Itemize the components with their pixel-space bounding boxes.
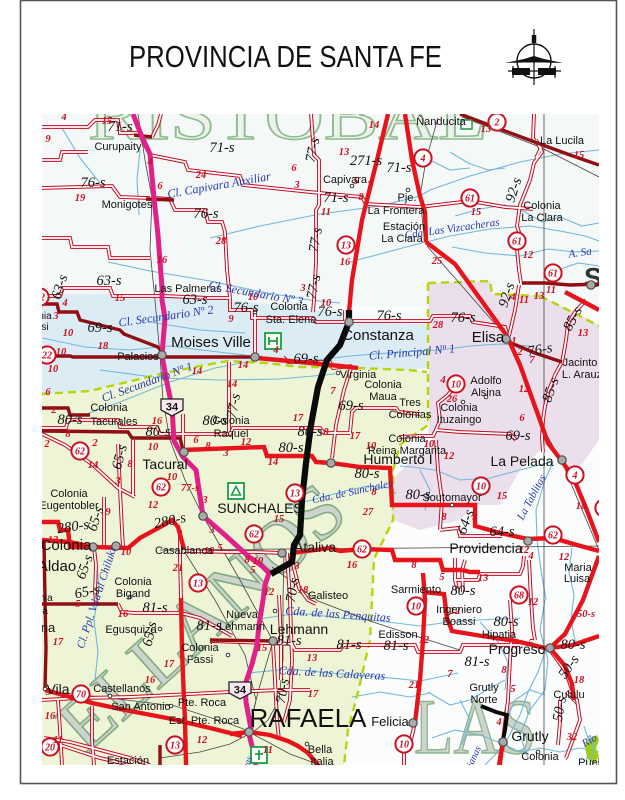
svg-text:5: 5 xyxy=(510,684,515,695)
svg-text:13: 13 xyxy=(534,291,545,302)
svg-text:Alsina: Alsina xyxy=(471,387,502,399)
svg-text:14: 14 xyxy=(227,379,238,390)
svg-text:80-s: 80-s xyxy=(494,614,519,630)
svg-text:Colonia: Colonia xyxy=(212,415,250,427)
svg-text:10: 10 xyxy=(451,380,461,391)
svg-text:Colonia: Colonia xyxy=(90,402,128,414)
svg-text:Tacurales: Tacurales xyxy=(90,416,138,428)
svg-text:6: 6 xyxy=(519,413,525,424)
svg-text:Grutly: Grutly xyxy=(511,728,548,744)
svg-text:34: 34 xyxy=(166,402,179,414)
svg-text:Galisteo: Galisteo xyxy=(308,590,348,602)
svg-text:81-s: 81-s xyxy=(337,637,362,653)
svg-text:62: 62 xyxy=(75,447,85,458)
svg-text:10: 10 xyxy=(167,472,178,483)
svg-text:6: 6 xyxy=(291,163,297,174)
svg-text:4: 4 xyxy=(572,471,578,482)
svg-text:17: 17 xyxy=(308,689,319,700)
svg-text:Colonia: Colonia xyxy=(523,200,561,212)
svg-text:Hipatia: Hipatia xyxy=(482,629,517,641)
svg-text:80-s: 80-s xyxy=(561,637,586,653)
svg-text:Egusquiza: Egusquiza xyxy=(105,624,157,636)
svg-text:Norte: Norte xyxy=(471,694,498,706)
svg-text:5: 5 xyxy=(439,572,444,583)
svg-text:70: 70 xyxy=(76,690,86,701)
svg-text:12: 12 xyxy=(523,250,534,261)
svg-text:12: 12 xyxy=(519,384,530,395)
svg-text:8: 8 xyxy=(501,665,507,676)
svg-text:Colonia: Colonia xyxy=(521,751,559,763)
svg-text:La Pelada: La Pelada xyxy=(490,453,553,469)
svg-text:2: 2 xyxy=(50,405,57,416)
svg-text:si: si xyxy=(41,322,48,333)
svg-text:8: 8 xyxy=(411,560,417,571)
svg-text:Colonia: Colonia xyxy=(440,402,478,414)
svg-text:81-s: 81-s xyxy=(465,654,490,670)
svg-text:13: 13 xyxy=(339,147,350,158)
svg-text:Progreso: Progreso xyxy=(489,641,546,657)
svg-text:68: 68 xyxy=(514,591,524,602)
svg-text:Aldao: Aldao xyxy=(38,558,76,575)
svg-text:Colonia: Colonia xyxy=(114,576,152,588)
svg-text:Bella: Bella xyxy=(308,744,333,756)
svg-text:4: 4 xyxy=(272,345,278,356)
svg-text:4: 4 xyxy=(509,292,515,303)
svg-text:14: 14 xyxy=(369,120,380,131)
svg-text:Grutly: Grutly xyxy=(469,682,499,694)
svg-text:80-s: 80-s xyxy=(355,466,380,482)
svg-text:10: 10 xyxy=(56,347,67,358)
svg-text:18: 18 xyxy=(576,501,587,512)
svg-text:11: 11 xyxy=(546,285,556,296)
svg-text:8: 8 xyxy=(441,512,447,523)
svg-text:4: 4 xyxy=(439,375,445,386)
svg-text:Capivara: Capivara xyxy=(323,174,368,186)
svg-text:12: 12 xyxy=(197,735,208,746)
svg-text:Castellanos: Castellanos xyxy=(93,683,151,695)
svg-text:15: 15 xyxy=(574,150,585,161)
svg-text:14: 14 xyxy=(268,457,279,468)
svg-text:24: 24 xyxy=(195,170,207,181)
svg-text:Maua: Maua xyxy=(369,391,397,403)
svg-text:Raquel: Raquel xyxy=(214,428,249,440)
svg-text:14: 14 xyxy=(88,460,99,471)
svg-text:3: 3 xyxy=(208,525,214,536)
svg-text:3: 3 xyxy=(299,283,305,294)
svg-text:Est. Pte. Roca: Est. Pte. Roca xyxy=(169,715,240,727)
svg-text:Colonia: Colonia xyxy=(181,642,219,654)
svg-text:18: 18 xyxy=(574,675,585,686)
svg-text:17: 17 xyxy=(293,413,304,424)
svg-text:L. Arauz: L. Arauz xyxy=(562,369,602,381)
svg-text:16: 16 xyxy=(157,255,168,266)
svg-text:Eugentobler: Eugentobler xyxy=(39,500,99,512)
svg-text:10: 10 xyxy=(48,364,59,375)
svg-text:61: 61 xyxy=(548,269,558,280)
svg-text:Soutomayor: Soutomayor xyxy=(422,492,482,504)
svg-text:16: 16 xyxy=(340,257,351,268)
svg-text:Colonia: Colonia xyxy=(41,537,93,554)
svg-text:69-s: 69-s xyxy=(88,320,113,336)
svg-text:PROVINCIA DE SANTA FE: PROVINCIA DE SANTA FE xyxy=(129,39,442,74)
svg-text:Colonia: Colonia xyxy=(388,433,426,445)
svg-text:8: 8 xyxy=(127,459,133,470)
svg-text:Palacios: Palacios xyxy=(117,351,159,363)
svg-text:Ingeniero: Ingeniero xyxy=(436,604,482,616)
svg-text:Ataliva: Ataliva xyxy=(294,539,336,555)
svg-text:76-s: 76-s xyxy=(377,308,402,324)
svg-text:10: 10 xyxy=(399,740,409,751)
svg-text:Ituzaingo: Ituzaingo xyxy=(437,414,482,426)
svg-text:32: 32 xyxy=(566,732,578,743)
svg-text:16: 16 xyxy=(118,609,129,620)
svg-text:4: 4 xyxy=(146,157,152,168)
svg-text:10: 10 xyxy=(411,602,421,613)
svg-text:71-s: 71-s xyxy=(324,190,349,206)
svg-text:27: 27 xyxy=(362,507,374,518)
svg-text:3: 3 xyxy=(52,311,58,322)
svg-text:34: 34 xyxy=(234,685,247,697)
svg-text:Colonias: Colonias xyxy=(389,409,432,421)
svg-text:63-s: 63-s xyxy=(97,273,122,289)
svg-text:3: 3 xyxy=(293,180,299,191)
svg-text:Lehmann: Lehmann xyxy=(270,621,328,637)
svg-text:La Lucila: La Lucila xyxy=(540,135,585,147)
svg-text:6: 6 xyxy=(45,387,51,398)
svg-text:Lehmann: Lehmann xyxy=(219,621,265,633)
svg-text:2: 2 xyxy=(91,438,98,449)
svg-text:71-s: 71-s xyxy=(387,160,412,176)
svg-text:21: 21 xyxy=(408,680,420,691)
svg-text:2: 2 xyxy=(43,439,50,450)
svg-text:2: 2 xyxy=(494,118,500,129)
svg-text:64-s: 64-s xyxy=(490,524,515,540)
svg-text:Curupaity: Curupaity xyxy=(94,141,142,153)
svg-text:10: 10 xyxy=(63,328,74,339)
svg-text:7: 7 xyxy=(367,180,373,191)
svg-text:10: 10 xyxy=(121,547,132,558)
svg-text:Colonia: Colonia xyxy=(50,488,88,500)
svg-text:14: 14 xyxy=(238,360,249,371)
svg-text:8: 8 xyxy=(323,427,329,438)
svg-text:62: 62 xyxy=(357,545,367,556)
svg-text:3: 3 xyxy=(222,448,228,459)
svg-text:69-s: 69-s xyxy=(506,428,531,444)
svg-text:81-s: 81-s xyxy=(143,600,168,616)
svg-text:11: 11 xyxy=(519,295,529,306)
svg-text:28: 28 xyxy=(215,236,227,247)
svg-text:Adolfo: Adolfo xyxy=(470,375,501,387)
svg-text:17: 17 xyxy=(350,431,361,442)
svg-text:7: 7 xyxy=(529,355,535,366)
svg-text:15: 15 xyxy=(115,293,126,304)
svg-text:3: 3 xyxy=(471,512,477,523)
svg-text:6: 6 xyxy=(157,181,163,192)
svg-text:Monigotes: Monigotes xyxy=(102,199,153,211)
svg-text:5: 5 xyxy=(75,599,80,610)
svg-text:77-s: 77-s xyxy=(181,483,199,494)
svg-text:Tres: Tres xyxy=(399,397,421,409)
svg-text:13: 13 xyxy=(290,489,300,500)
svg-text:Pte. Roca: Pte. Roca xyxy=(178,697,227,709)
svg-text:Ñanducita: Ñanducita xyxy=(416,115,466,128)
svg-text:81-s: 81-s xyxy=(197,618,222,634)
svg-text:13: 13 xyxy=(341,241,351,252)
svg-text:Humberto I: Humberto I xyxy=(363,451,432,467)
svg-text:62: 62 xyxy=(548,531,558,542)
svg-text:16: 16 xyxy=(347,560,358,571)
svg-text:76-s: 76-s xyxy=(194,206,219,222)
svg-text:1: 1 xyxy=(511,336,516,347)
svg-text:80-s: 80-s xyxy=(58,412,83,428)
svg-text:80-s: 80-s xyxy=(298,424,323,440)
svg-text:Cululu: Cululu xyxy=(553,689,584,701)
svg-text:5: 5 xyxy=(250,565,255,576)
svg-text:3: 3 xyxy=(293,561,299,572)
svg-text:Luisa: Luisa xyxy=(564,573,591,585)
svg-text:Vila: Vila xyxy=(46,681,69,697)
svg-text:8: 8 xyxy=(205,441,211,452)
svg-text:Elisa: Elisa xyxy=(472,329,505,346)
svg-text:5: 5 xyxy=(217,543,222,554)
svg-text:Pje.: Pje. xyxy=(398,192,417,204)
svg-text:Colonia: Colonia xyxy=(364,379,402,391)
svg-text:21: 21 xyxy=(172,563,184,574)
svg-text:9: 9 xyxy=(105,507,111,518)
svg-text:SUNCHALES: SUNCHALES xyxy=(217,500,303,516)
svg-text:10: 10 xyxy=(148,442,159,453)
svg-text:Jacinto: Jacinto xyxy=(563,357,598,369)
svg-text:11: 11 xyxy=(53,735,63,746)
svg-text:2: 2 xyxy=(516,347,523,358)
svg-text:3: 3 xyxy=(114,476,120,487)
svg-text:76-s: 76-s xyxy=(451,310,476,326)
svg-text:15: 15 xyxy=(471,207,482,218)
svg-text:Felicia: Felicia xyxy=(371,714,409,729)
svg-text:28: 28 xyxy=(432,320,444,331)
svg-text:80-s: 80-s xyxy=(279,440,304,456)
svg-text:10: 10 xyxy=(321,298,332,309)
svg-text:12: 12 xyxy=(528,597,539,608)
svg-text:La Clara: La Clara xyxy=(521,212,563,224)
svg-text:9: 9 xyxy=(228,314,234,325)
svg-text:8: 8 xyxy=(358,192,364,203)
svg-text:6: 6 xyxy=(193,435,199,446)
svg-text:71-s: 71-s xyxy=(210,140,235,156)
svg-text:13: 13 xyxy=(481,124,492,135)
svg-text:61: 61 xyxy=(465,194,475,205)
svg-text:69-s: 69-s xyxy=(339,398,364,414)
svg-text:271-s: 271-s xyxy=(350,153,383,169)
svg-text:11: 11 xyxy=(321,207,331,218)
svg-text:13: 13 xyxy=(170,741,180,752)
svg-text:76-s: 76-s xyxy=(81,175,106,191)
svg-text:Sta. Elena: Sta. Elena xyxy=(266,314,318,326)
svg-text:16: 16 xyxy=(152,416,163,427)
svg-text:19: 19 xyxy=(75,193,86,204)
svg-text:Fassi: Fassi xyxy=(187,654,213,666)
svg-text:13: 13 xyxy=(193,579,203,590)
svg-text:4: 4 xyxy=(495,717,501,728)
svg-text:Constanza: Constanza xyxy=(342,327,414,344)
svg-text:62: 62 xyxy=(249,530,259,541)
svg-text:Sarmiento: Sarmiento xyxy=(391,584,441,596)
svg-text:12: 12 xyxy=(148,500,159,511)
svg-text:80-s: 80-s xyxy=(451,583,476,599)
svg-text:Moises Ville: Moises Ville xyxy=(171,334,251,351)
svg-text:13: 13 xyxy=(578,328,589,339)
svg-text:4: 4 xyxy=(420,154,426,165)
svg-text:12: 12 xyxy=(264,587,275,598)
svg-text:9: 9 xyxy=(45,134,51,145)
svg-text:8: 8 xyxy=(65,429,71,440)
svg-text:15: 15 xyxy=(102,116,113,127)
svg-text:3: 3 xyxy=(201,495,207,506)
svg-text:RAFAELA: RAFAELA xyxy=(249,703,367,733)
svg-text:Nueva: Nueva xyxy=(226,609,259,621)
svg-text:Providencia: Providencia xyxy=(449,540,522,556)
svg-text:25: 25 xyxy=(431,256,443,267)
svg-text:50-s: 50-s xyxy=(577,609,595,620)
svg-text:San Antonio: San Antonio xyxy=(111,701,170,713)
svg-text:Edisson: Edisson xyxy=(378,629,417,641)
svg-text:Casablanca: Casablanca xyxy=(155,545,214,557)
svg-text:7: 7 xyxy=(330,386,336,397)
svg-text:Bigand: Bigand xyxy=(116,588,150,600)
svg-text:17: 17 xyxy=(164,659,175,670)
svg-text:18: 18 xyxy=(98,341,109,352)
svg-text:13: 13 xyxy=(307,653,318,664)
svg-text:62: 62 xyxy=(156,483,166,494)
svg-text:15: 15 xyxy=(257,643,268,654)
svg-text:11: 11 xyxy=(263,745,273,756)
svg-text:17: 17 xyxy=(53,637,64,648)
svg-text:61: 61 xyxy=(512,237,522,248)
svg-text:Tacural: Tacural xyxy=(142,456,187,472)
svg-text:22: 22 xyxy=(41,351,52,362)
svg-text:16: 16 xyxy=(45,711,56,722)
svg-text:13: 13 xyxy=(478,573,489,584)
svg-text:10: 10 xyxy=(476,482,486,493)
svg-text:4: 4 xyxy=(61,298,67,309)
svg-text:69-s: 69-s xyxy=(294,351,319,367)
svg-text:12: 12 xyxy=(419,635,430,646)
svg-text:15: 15 xyxy=(497,491,508,502)
svg-text:La Frontera: La Frontera xyxy=(368,205,426,217)
svg-text:Boassi: Boassi xyxy=(442,616,475,628)
svg-text:na: na xyxy=(41,620,56,635)
svg-text:7: 7 xyxy=(447,669,453,680)
